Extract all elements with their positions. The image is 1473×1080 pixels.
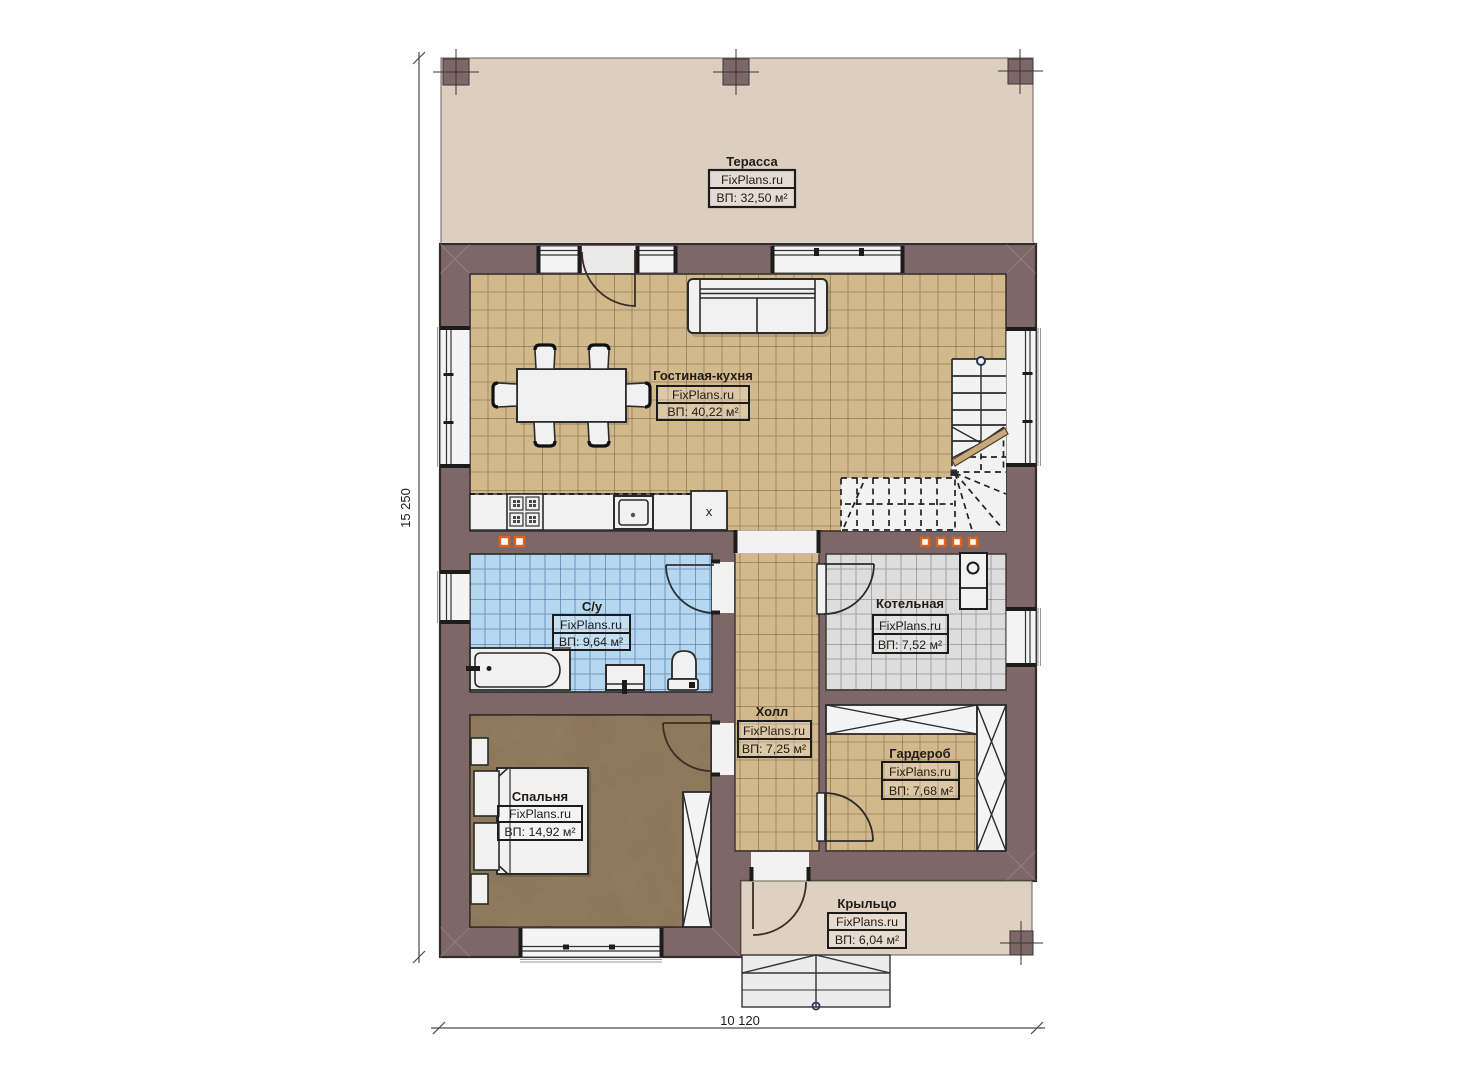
- svg-text:Холл: Холл: [756, 704, 789, 719]
- svg-text:ВП: 32,50 м²: ВП: 32,50 м²: [716, 191, 787, 205]
- svg-text:FixPlans.ru: FixPlans.ru: [743, 724, 805, 738]
- svg-text:Спальня: Спальня: [512, 789, 568, 804]
- svg-text:15 250: 15 250: [398, 488, 413, 528]
- svg-text:ВП: 7,68 м²: ВП: 7,68 м²: [889, 784, 953, 798]
- svg-text:FixPlans.ru: FixPlans.ru: [889, 765, 951, 779]
- svg-text:FixPlans.ru: FixPlans.ru: [879, 619, 941, 633]
- svg-text:FixPlans.ru: FixPlans.ru: [560, 618, 622, 632]
- svg-text:FixPlans.ru: FixPlans.ru: [836, 915, 898, 929]
- svg-text:Крыльцо: Крыльцо: [837, 896, 896, 911]
- svg-text:FixPlans.ru: FixPlans.ru: [721, 173, 783, 187]
- svg-text:Гардероб: Гардероб: [889, 746, 950, 761]
- svg-text:ВП: 6,04 м²: ВП: 6,04 м²: [835, 933, 899, 947]
- svg-text:ВП: 40,22 м²: ВП: 40,22 м²: [667, 405, 738, 419]
- svg-text:x: x: [706, 504, 713, 519]
- svg-text:Терасса: Терасса: [726, 154, 778, 169]
- svg-text:ВП: 14,92 м²: ВП: 14,92 м²: [504, 825, 575, 839]
- svg-text:Гостиная-кухня: Гостиная-кухня: [653, 368, 753, 383]
- svg-text:ВП: 7,52 м²: ВП: 7,52 м²: [878, 638, 942, 652]
- svg-text:ВП: 7,25 м²: ВП: 7,25 м²: [742, 742, 806, 756]
- svg-text:10 120: 10 120: [720, 1013, 760, 1028]
- svg-text:FixPlans.ru: FixPlans.ru: [672, 388, 734, 402]
- svg-text:С/у: С/у: [582, 599, 603, 614]
- svg-text:Котельная: Котельная: [876, 596, 944, 611]
- svg-text:FixPlans.ru: FixPlans.ru: [509, 807, 571, 821]
- svg-text:ВП: 9,64 м²: ВП: 9,64 м²: [559, 635, 623, 649]
